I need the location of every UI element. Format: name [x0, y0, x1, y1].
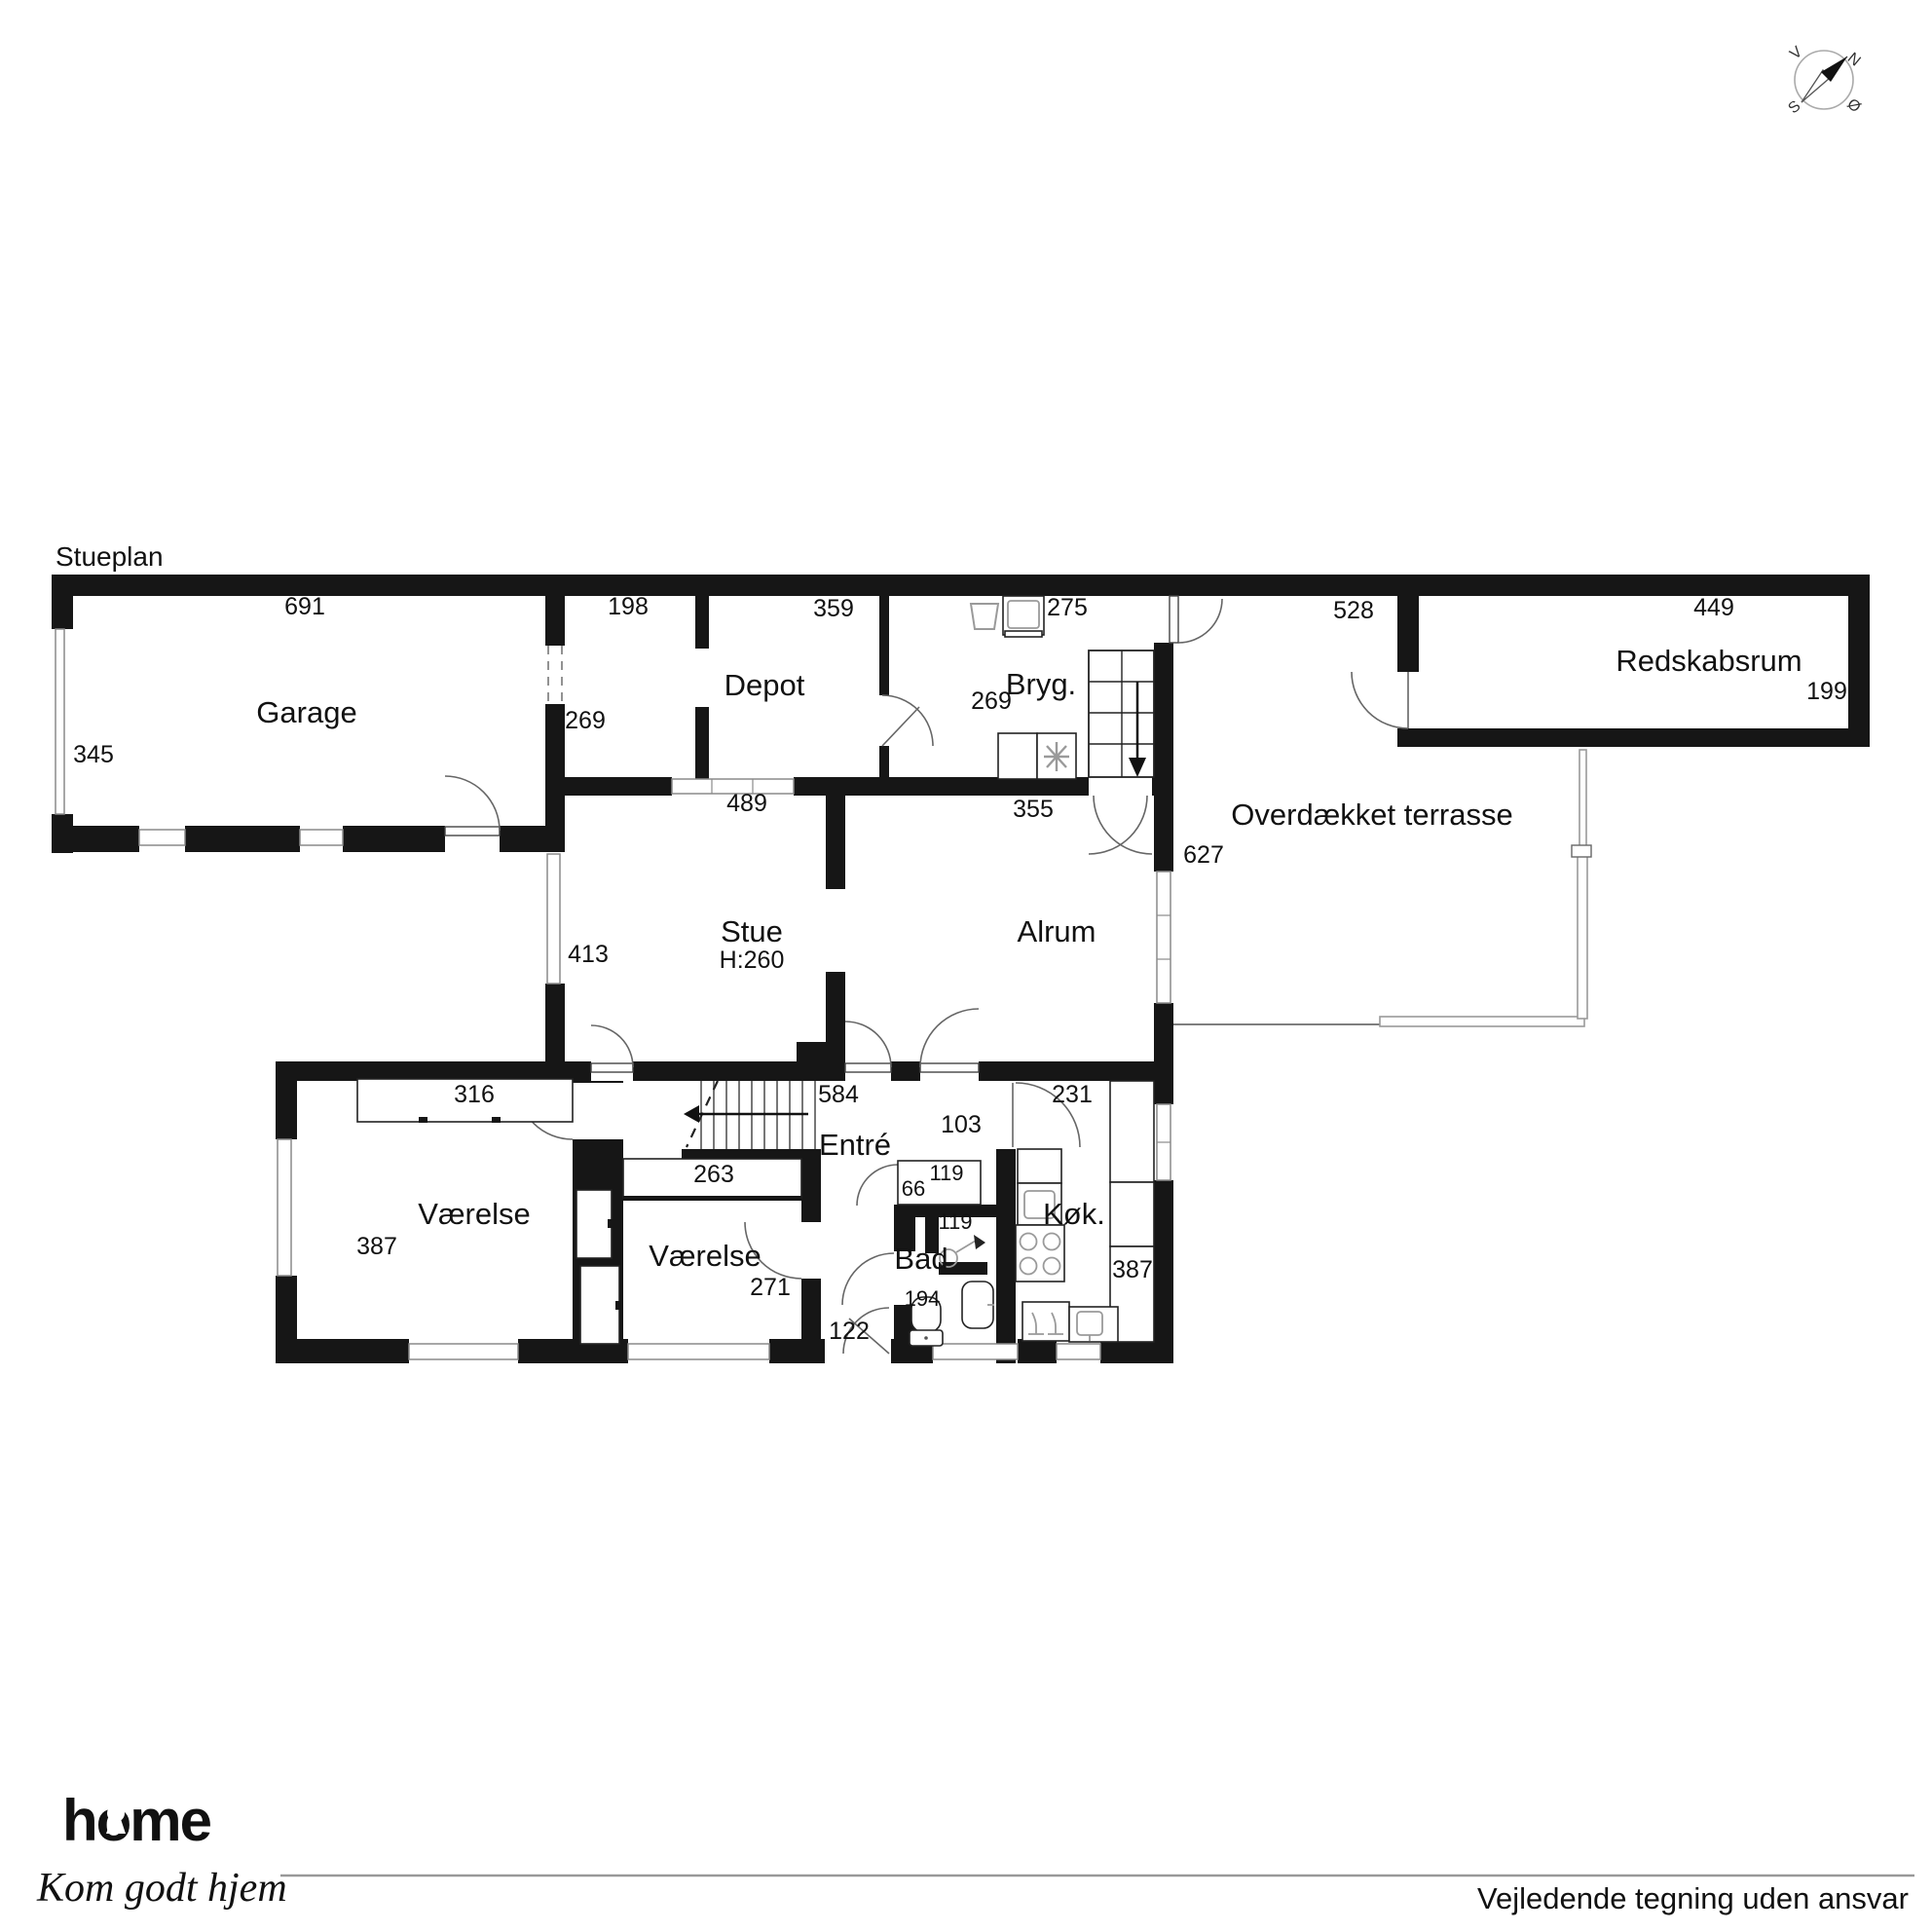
alrum-stairs-doors: [1089, 796, 1152, 854]
counter: [1110, 1081, 1154, 1182]
window: [1057, 1344, 1100, 1359]
washing-machine-icon: [1003, 596, 1044, 637]
dim-stue-north: 489: [726, 790, 767, 817]
dim-garage-width: 691: [284, 593, 325, 620]
dim-bryggers-door: 269: [971, 687, 1012, 715]
compass-south: S: [1785, 97, 1803, 117]
kitchen-sink-icon: [1069, 1307, 1118, 1342]
closet: [576, 1190, 612, 1258]
compass-rose-icon: N V S Ø: [1785, 44, 1863, 118]
dim-back-door: 122: [829, 1318, 870, 1345]
dim-depot-width: 359: [813, 595, 854, 622]
room-vaerelse1: Værelse: [418, 1197, 530, 1231]
dim-redskabsrum-depth: 199: [1806, 678, 1847, 705]
room-redskabsrum: Redskabsrum: [1616, 644, 1802, 678]
garage-door: [445, 776, 500, 836]
washbasin-icon: [962, 1282, 994, 1328]
room-depot: Depot: [724, 668, 805, 702]
dim-vaerelse2-east: 271: [750, 1274, 791, 1301]
dim-koekken-north: 231: [1052, 1081, 1093, 1108]
room-entre: Entré: [819, 1128, 891, 1162]
dim-anteroom-depth: 269: [565, 707, 606, 734]
floor-plan-page: N V S Ø Stueplan 691 198 359 275 528 449…: [0, 0, 1932, 1932]
stue-entre-door: [845, 1022, 891, 1072]
dim-bryggers-north: 275: [1047, 594, 1088, 621]
bryggers-terrasse-door: [1170, 596, 1222, 643]
dim-terrasse-north: 528: [1333, 597, 1374, 624]
dashed-opening: [545, 646, 565, 704]
alrum-entre-door: [920, 1009, 979, 1072]
dim-vaerelse1-west: 387: [356, 1233, 397, 1260]
cabinet: [1018, 1149, 1061, 1183]
main-stairs: [684, 1081, 815, 1149]
counter: [1110, 1182, 1154, 1246]
freezer-icon: [1037, 733, 1076, 779]
entre-wardrobe-door: [857, 1165, 898, 1206]
dim-stue-west: 413: [568, 941, 609, 968]
window: [139, 830, 185, 845]
floor-plan-drawing: N V S Ø Stueplan 691 198 359 275 528 449…: [0, 0, 1932, 1932]
dim-entre-door: 103: [941, 1111, 982, 1138]
dim-terrasse-west: 627: [1183, 841, 1224, 869]
compass-north: N: [1844, 50, 1864, 69]
window: [409, 1344, 518, 1359]
dim-koekken-counter: 387: [1112, 1256, 1153, 1283]
laundry-tub-icon: [971, 604, 998, 629]
closet: [580, 1266, 619, 1344]
logo-text: home: [62, 1788, 211, 1853]
window: [1157, 872, 1170, 1003]
dim-redskabsrum-width: 449: [1693, 594, 1734, 621]
dim-alrum-north: 355: [1013, 796, 1054, 823]
dim-entre-wardrobe-width: 119: [929, 1161, 963, 1185]
dim-garage-depth: 345: [73, 741, 114, 768]
dishwasher-icon: [1022, 1302, 1069, 1341]
stue-hall-door: [591, 1025, 633, 1072]
dim-anteroom-width: 198: [608, 593, 649, 620]
home-logo: home Kom godt hjem: [36, 1788, 287, 1911]
basement-stairs: [1089, 650, 1154, 777]
walls: [52, 575, 1870, 1363]
bad-door: [842, 1253, 894, 1305]
redskabsrum-door: [1352, 672, 1408, 728]
page-title: Stueplan: [56, 541, 164, 572]
stove-icon: [1016, 1225, 1064, 1282]
dim-vaerelse2-wardrobe: 263: [693, 1161, 734, 1188]
appliance-icon: [998, 733, 1037, 779]
dim-bad-shower: 119: [938, 1209, 972, 1234]
window: [547, 854, 560, 984]
depot-bryggers-door: [882, 695, 933, 746]
terrace-boundary: [1173, 750, 1591, 1026]
disclaimer-text: Vejledende tegning uden ansvar: [1477, 1881, 1909, 1915]
window: [278, 1139, 291, 1276]
room-terrasse: Overdækket terrasse: [1231, 798, 1512, 832]
dim-vaerelse1-wardrobe: 316: [454, 1081, 495, 1108]
window: [628, 1344, 769, 1359]
window: [56, 629, 64, 814]
dim-entre-width: 584: [818, 1081, 859, 1108]
room-alrum: Alrum: [1018, 914, 1096, 948]
stue-ceiling-height: H:260: [720, 947, 785, 974]
dim-bad-width: 194: [905, 1286, 941, 1311]
logo-tagline: Kom godt hjem: [36, 1866, 287, 1911]
room-bad: Bad: [894, 1242, 947, 1276]
room-bryggers: Bryg.: [1006, 667, 1076, 701]
room-koekken: Køk.: [1043, 1197, 1105, 1231]
footer: home Kom godt hjem Vejledende tegning ud…: [36, 1788, 1914, 1915]
window: [933, 1344, 1018, 1359]
dim-entre-wardrobe-depth: 66: [902, 1176, 925, 1201]
room-stue: Stue: [721, 914, 783, 948]
room-vaerelse2: Værelse: [649, 1239, 761, 1273]
room-garage: Garage: [256, 695, 356, 729]
window: [300, 830, 343, 845]
